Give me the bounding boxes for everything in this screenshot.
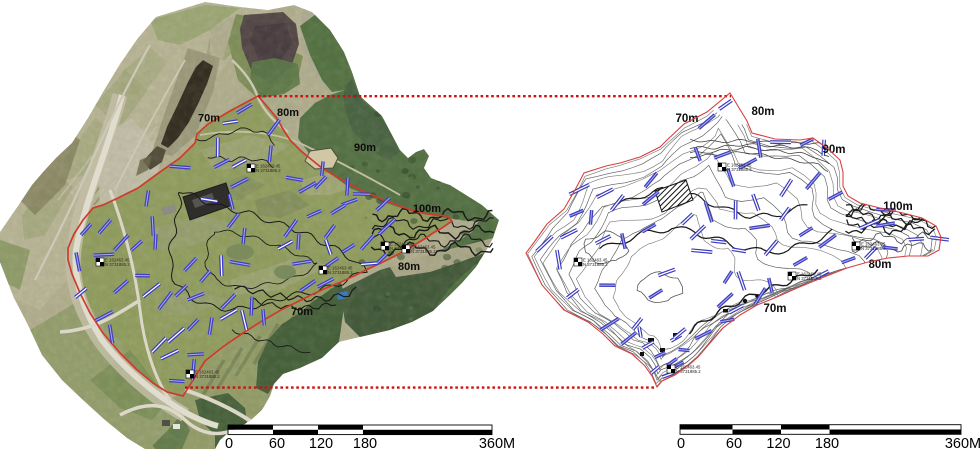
svg-text:N 3731885.2: N 3731885.2 — [861, 246, 886, 251]
svg-text:70m: 70m — [198, 113, 220, 125]
svg-text:N 3731885.2: N 3731885.2 — [195, 374, 220, 379]
svg-text:N 3731885.2: N 3731885.2 — [411, 249, 436, 254]
svg-text:N 3731885.2: N 3731885.2 — [727, 167, 752, 172]
svg-text:180: 180 — [815, 436, 839, 449]
svg-text:70m: 70m — [675, 113, 698, 125]
svg-text:360M: 360M — [945, 436, 980, 449]
svg-text:N 3731885.2: N 3731885.2 — [328, 270, 353, 275]
svg-text:60: 60 — [269, 436, 285, 449]
svg-text:0: 0 — [677, 436, 685, 449]
svg-text:180: 180 — [353, 436, 377, 449]
svg-text:100m: 100m — [413, 203, 441, 215]
svg-text:70m: 70m — [763, 303, 786, 315]
svg-text:0: 0 — [225, 436, 233, 449]
svg-text:360M: 360M — [479, 436, 515, 449]
svg-text:N 3731885.2: N 3731885.2 — [256, 168, 281, 173]
svg-text:80m: 80m — [398, 261, 420, 273]
svg-text:70m: 70m — [291, 306, 313, 318]
svg-text:120: 120 — [309, 436, 333, 449]
svg-text:80m: 80m — [751, 106, 774, 118]
svg-text:90m: 90m — [354, 142, 376, 154]
svg-text:80m: 80m — [277, 107, 299, 119]
svg-text:60: 60 — [726, 436, 742, 449]
svg-text:120: 120 — [766, 436, 790, 449]
svg-text:N 3731885.2: N 3731885.2 — [105, 262, 130, 267]
svg-text:N 3731885.2: N 3731885.2 — [583, 262, 608, 267]
svg-text:100m: 100m — [883, 201, 912, 213]
